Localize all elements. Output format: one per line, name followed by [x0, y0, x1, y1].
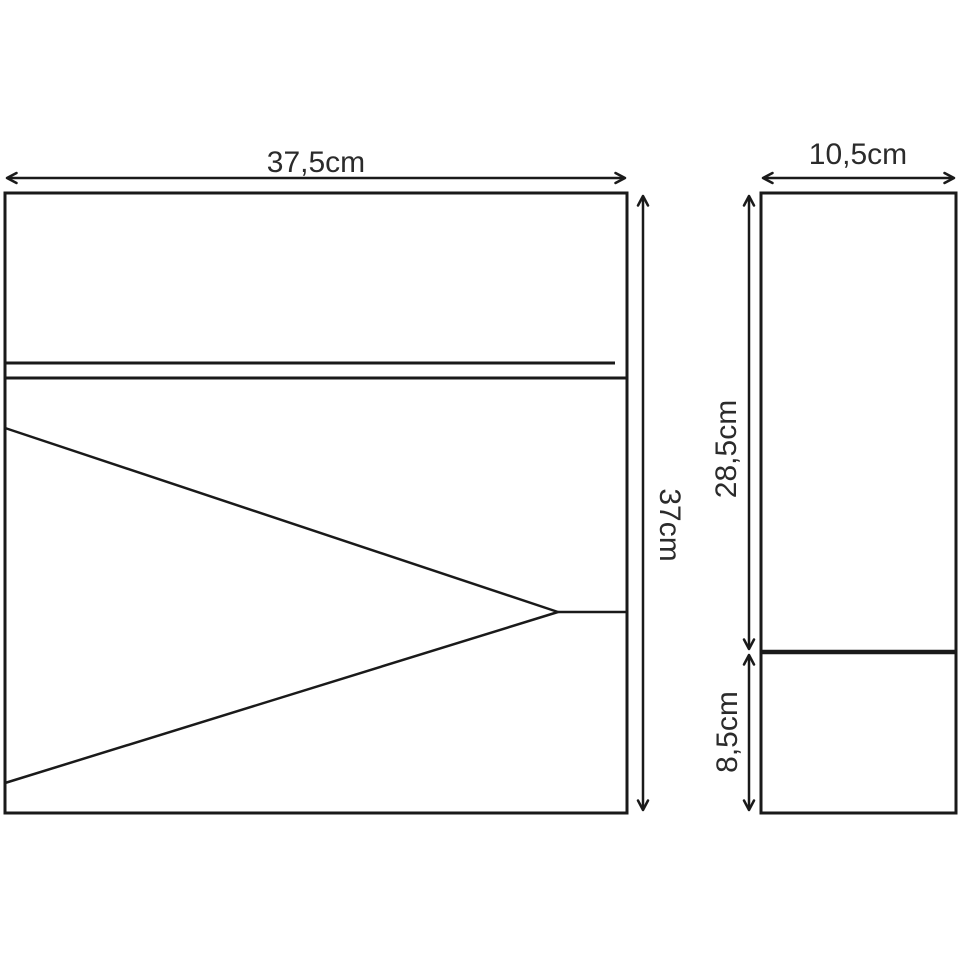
side-lower-height-dimension-label: 8,5cm — [711, 691, 744, 773]
technical-drawing: 37,5cm 37cm 10,5cm 28,5cm 8,5cm — [0, 0, 960, 960]
front-view-fold-upper-diagonal — [5, 428, 558, 612]
dimensions: 37,5cm 37cm 10,5cm 28,5cm 8,5cm — [7, 138, 954, 810]
side-view-outline — [761, 193, 956, 813]
front-height-dimension-label: 37cm — [653, 488, 686, 561]
front-view-fold-lower-diagonal — [5, 612, 558, 783]
side-view — [761, 193, 956, 813]
side-upper-height-dimension-label: 28,5cm — [710, 400, 743, 498]
front-view — [5, 193, 627, 813]
technical-drawing-page: 37,5cm 37cm 10,5cm 28,5cm 8,5cm — [0, 0, 960, 960]
front-view-outline — [5, 193, 627, 813]
side-width-dimension-label: 10,5cm — [809, 138, 907, 171]
front-width-dimension-label: 37,5cm — [267, 146, 365, 179]
